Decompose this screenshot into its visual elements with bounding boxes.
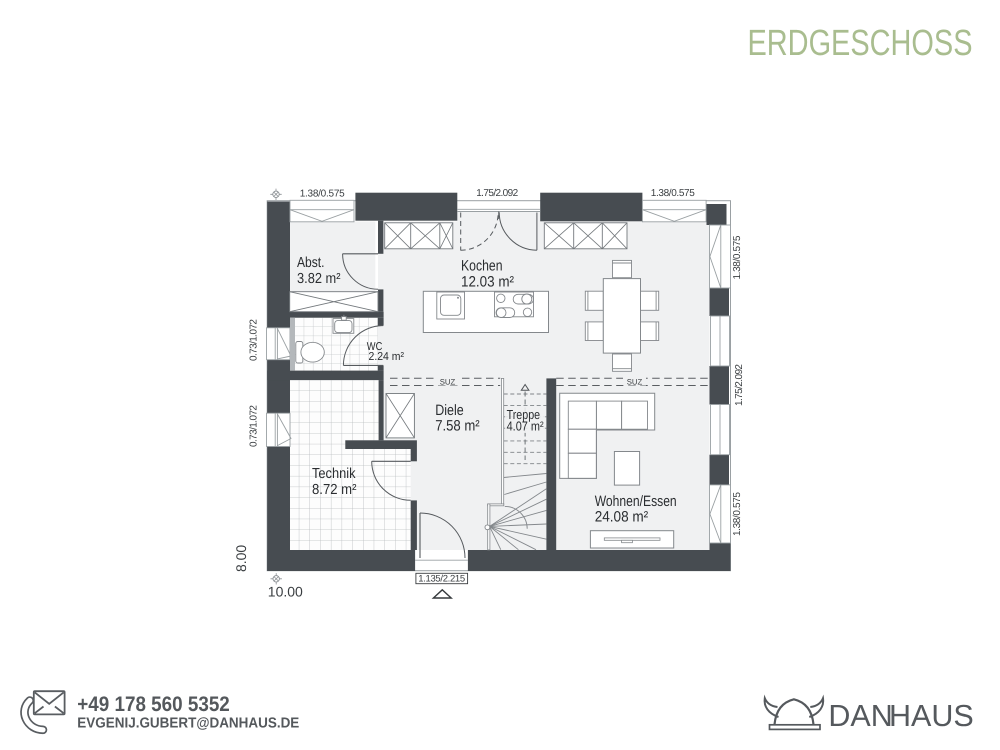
svg-text:SUZ: SUZ [627, 377, 643, 386]
svg-text:Wohnen/Essen: Wohnen/Essen [595, 493, 677, 510]
svg-text:8.00: 8.00 [233, 545, 249, 572]
svg-text:Abst.: Abst. [297, 255, 325, 271]
svg-text:1.75/2.092: 1.75/2.092 [476, 188, 518, 199]
svg-text:24.08 m²: 24.08 m² [595, 509, 649, 526]
svg-text:2.24 m²: 2.24 m² [369, 351, 405, 363]
svg-text:1.38/0.575: 1.38/0.575 [300, 189, 345, 200]
svg-text:4.07 m²: 4.07 m² [507, 418, 545, 433]
svg-text:Kochen: Kochen [461, 258, 503, 275]
svg-text:1.135/2.215: 1.135/2.215 [418, 574, 465, 585]
svg-text:3.82 m²: 3.82 m² [297, 271, 341, 287]
svg-text:SUZ: SUZ [440, 377, 456, 386]
svg-text:10.00: 10.00 [268, 584, 303, 600]
svg-text:Diele: Diele [435, 402, 464, 419]
svg-text:0.73/1.072: 0.73/1.072 [248, 405, 259, 447]
svg-text:12.03 m²: 12.03 m² [461, 273, 514, 290]
svg-text:EVGENIJ.GUBERT@DANHAUS.DE: EVGENIJ.GUBERT@DANHAUS.DE [77, 715, 299, 731]
svg-text:1.75/2.092: 1.75/2.092 [734, 364, 745, 406]
svg-text:0.73/1.072: 0.73/1.072 [248, 319, 259, 361]
svg-text:1.38/0.575: 1.38/0.575 [651, 188, 695, 199]
svg-text:8.72 m²: 8.72 m² [312, 482, 357, 498]
svg-text:ERDGESCHOSS: ERDGESCHOSS [748, 22, 973, 63]
svg-text:+49 178 560 5352: +49 178 560 5352 [77, 693, 230, 716]
svg-text:1.38/0.575: 1.38/0.575 [732, 235, 743, 279]
svg-text:7.58 m²: 7.58 m² [435, 417, 480, 434]
svg-text:DANHAUS: DANHAUS [828, 699, 973, 733]
svg-text:Technik: Technik [312, 466, 356, 482]
svg-text:1.38/0.575: 1.38/0.575 [732, 492, 743, 536]
